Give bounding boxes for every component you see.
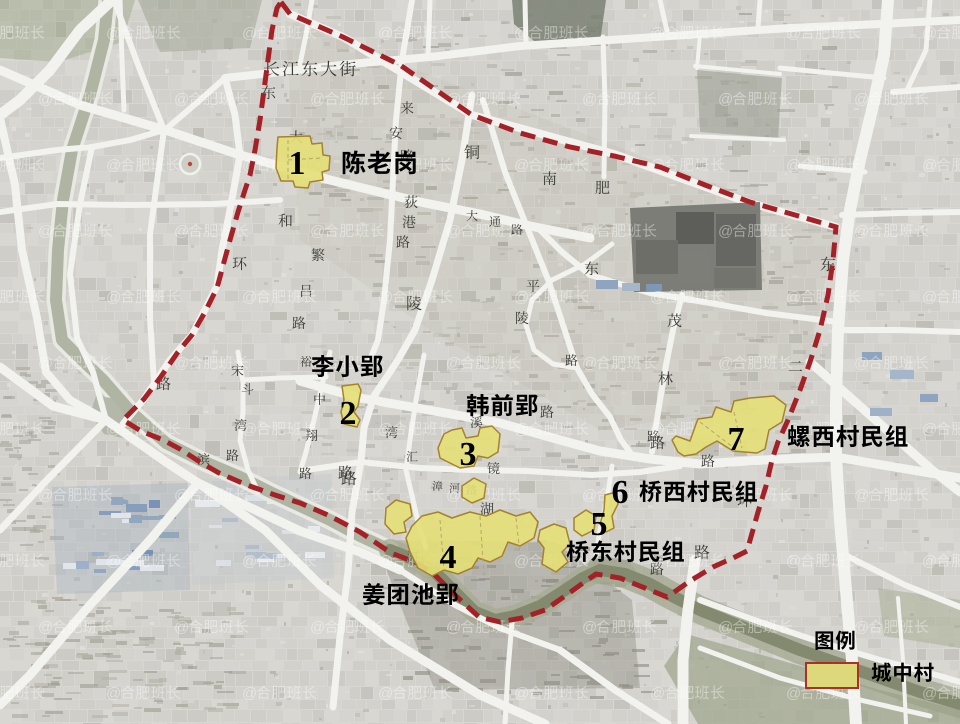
svg-text:@: @ — [922, 289, 937, 306]
svg-text:@: @ — [310, 91, 325, 108]
svg-text:@: @ — [174, 487, 189, 504]
svg-text:@: @ — [106, 157, 121, 174]
svg-text:@: @ — [582, 619, 597, 636]
svg-text:@: @ — [174, 619, 189, 636]
svg-text:@: @ — [174, 91, 189, 108]
svg-text:@: @ — [922, 685, 937, 702]
svg-text:1: 1 — [289, 145, 306, 182]
svg-text:7: 7 — [728, 421, 745, 458]
svg-text:@: @ — [242, 421, 257, 438]
svg-text:@: @ — [514, 685, 529, 702]
svg-text:@: @ — [650, 421, 665, 438]
svg-text:@: @ — [446, 487, 461, 504]
svg-text:@: @ — [38, 355, 53, 372]
svg-text:@: @ — [922, 553, 937, 570]
svg-text:@: @ — [514, 553, 529, 570]
svg-text:@: @ — [922, 157, 937, 174]
svg-text:@: @ — [106, 421, 121, 438]
svg-text:@: @ — [718, 619, 733, 636]
svg-text:@: @ — [242, 553, 257, 570]
svg-text:@: @ — [446, 223, 461, 240]
svg-text:@: @ — [786, 685, 801, 702]
svg-text:@: @ — [582, 355, 597, 372]
svg-text:@: @ — [718, 91, 733, 108]
svg-text:@: @ — [378, 289, 393, 306]
svg-text:2: 2 — [340, 395, 357, 432]
svg-text:@: @ — [854, 487, 869, 504]
svg-text:@: @ — [786, 289, 801, 306]
svg-text:@: @ — [854, 355, 869, 372]
svg-text:@: @ — [242, 685, 257, 702]
svg-text:@: @ — [786, 25, 801, 42]
svg-text:3: 3 — [460, 436, 477, 473]
svg-text:@: @ — [174, 223, 189, 240]
svg-text:@: @ — [378, 685, 393, 702]
svg-text:@: @ — [310, 223, 325, 240]
svg-text:@: @ — [718, 355, 733, 372]
svg-text:@: @ — [310, 487, 325, 504]
svg-text:@: @ — [582, 223, 597, 240]
svg-text:@: @ — [514, 25, 529, 42]
svg-text:@: @ — [106, 289, 121, 306]
svg-text:@: @ — [242, 289, 257, 306]
svg-text:@: @ — [718, 223, 733, 240]
svg-text:6: 6 — [612, 474, 629, 511]
svg-text:@: @ — [582, 91, 597, 108]
svg-text:@: @ — [106, 25, 121, 42]
svg-text:@: @ — [650, 25, 665, 42]
svg-text:@: @ — [854, 619, 869, 636]
svg-text:@: @ — [310, 619, 325, 636]
svg-text:@: @ — [854, 91, 869, 108]
svg-text:@: @ — [514, 421, 529, 438]
svg-text:@: @ — [378, 421, 393, 438]
svg-text:5: 5 — [591, 506, 608, 543]
svg-text:@: @ — [514, 157, 529, 174]
svg-text:@: @ — [38, 619, 53, 636]
svg-text:@: @ — [242, 25, 257, 42]
svg-text:@: @ — [650, 289, 665, 306]
svg-text:@: @ — [38, 223, 53, 240]
svg-text:@: @ — [514, 289, 529, 306]
svg-text:@: @ — [446, 619, 461, 636]
svg-text:4: 4 — [440, 539, 457, 576]
svg-text:@: @ — [38, 91, 53, 108]
svg-text:@: @ — [378, 25, 393, 42]
svg-text:@: @ — [582, 487, 597, 504]
svg-text:@: @ — [378, 553, 393, 570]
svg-text:@: @ — [106, 685, 121, 702]
svg-text:@: @ — [922, 421, 937, 438]
svg-text:@: @ — [106, 553, 121, 570]
svg-text:@: @ — [786, 553, 801, 570]
svg-text:@: @ — [38, 487, 53, 504]
svg-text:@: @ — [786, 157, 801, 174]
svg-text:@: @ — [854, 223, 869, 240]
svg-text:@: @ — [650, 685, 665, 702]
svg-text:@: @ — [922, 25, 937, 42]
svg-text:@: @ — [446, 355, 461, 372]
